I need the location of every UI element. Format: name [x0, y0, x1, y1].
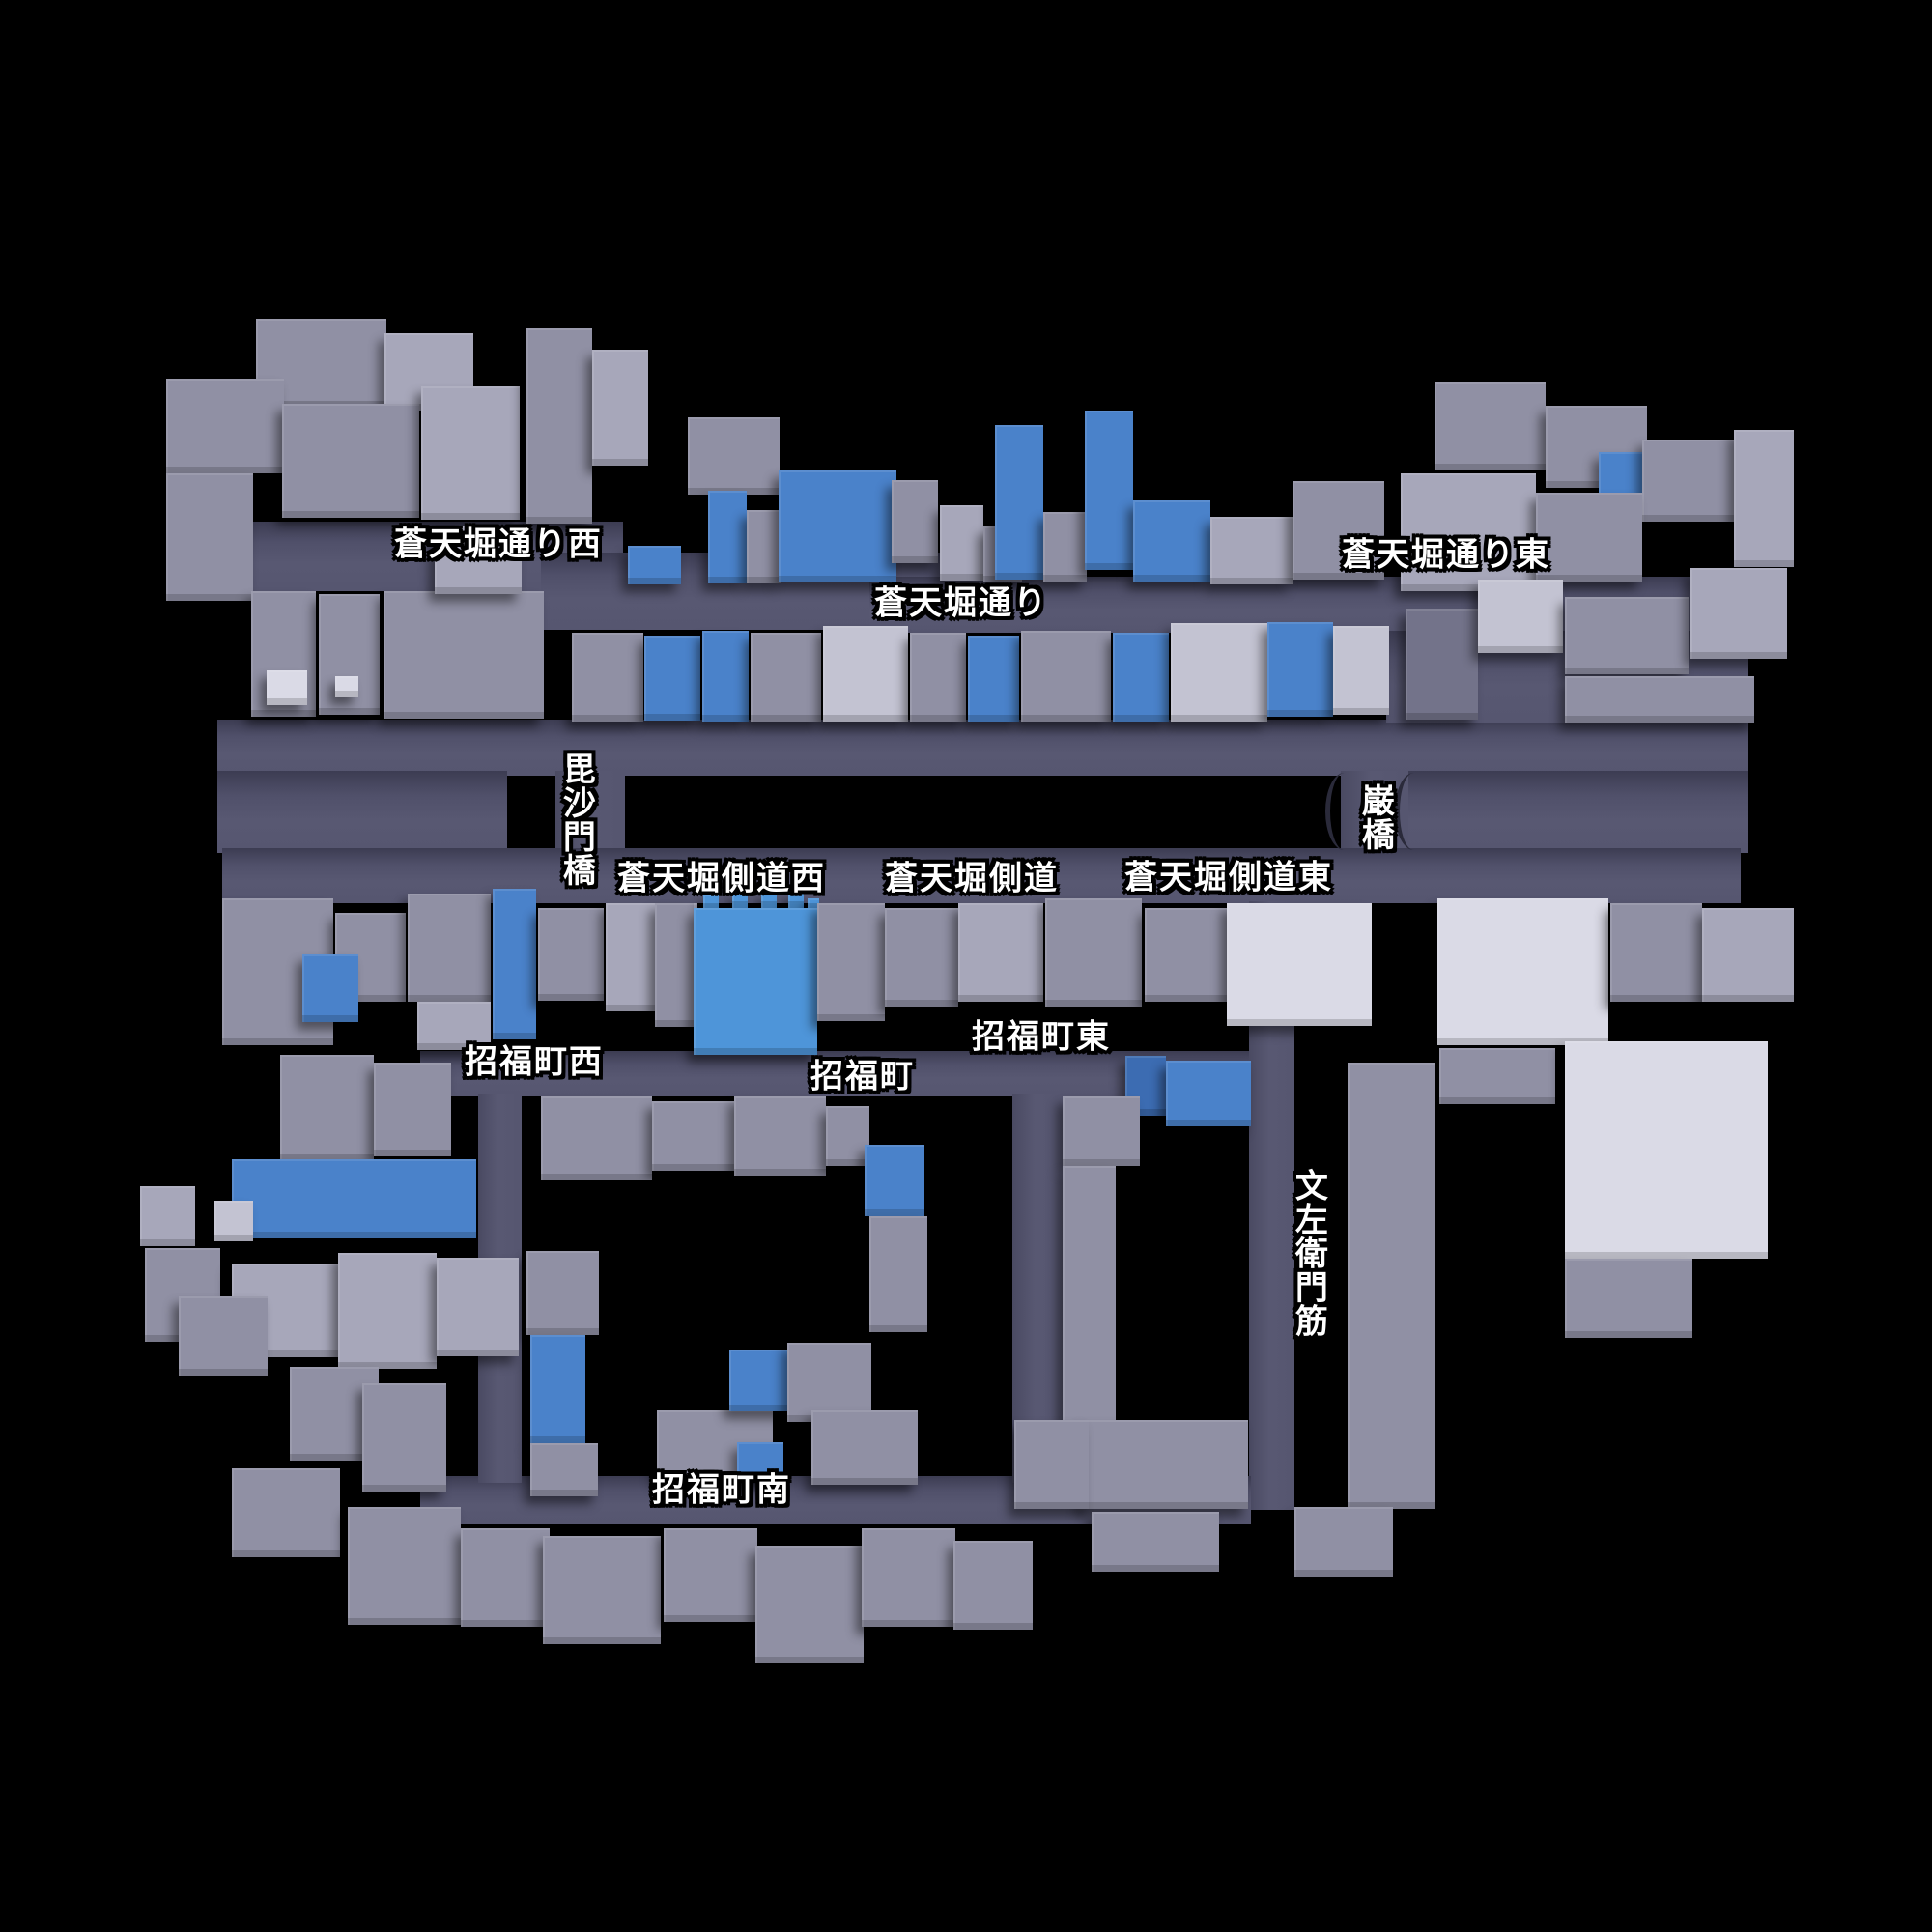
building-block: [437, 1258, 519, 1356]
building-block: [302, 954, 358, 1022]
shofukucho-east-label: 招福町東: [972, 1020, 1111, 1056]
building-block: [1171, 623, 1267, 722]
building-block: [166, 379, 284, 473]
sotenbori-footpath-west-label: 蒼天堀側道西: [617, 862, 826, 897]
building-block: [1734, 430, 1794, 567]
building-block: [953, 1541, 1033, 1630]
building-block: [1690, 568, 1787, 659]
building-block: [1021, 631, 1111, 722]
building-block: [958, 903, 1043, 1002]
building-block: [862, 1528, 955, 1627]
building-block: [734, 1096, 826, 1176]
building-block: [664, 1528, 757, 1622]
iwao-bridge-label: 巌橋: [1357, 783, 1393, 851]
building-block: [1267, 622, 1333, 717]
building-block: [538, 908, 604, 1001]
building-block: [995, 425, 1043, 580]
building-block: [1565, 1041, 1768, 1259]
building-block: [335, 676, 358, 697]
building-block: [865, 1145, 924, 1216]
building-block: [1333, 626, 1389, 715]
building-block: [811, 1410, 918, 1485]
building-block: [1406, 609, 1478, 720]
road-segment: [217, 771, 507, 853]
sotenbori-footpath-east-label: 蒼天堀側道東: [1124, 861, 1333, 896]
sotenbori-st-east-label: 蒼天堀通り東: [1342, 538, 1550, 574]
building-block: [592, 350, 648, 466]
shofukucho-label: 招福町: [810, 1060, 915, 1095]
building-block: [1063, 1096, 1140, 1166]
building-block: [1439, 1048, 1555, 1104]
building-block: [1348, 1063, 1435, 1509]
building-block: [1210, 517, 1293, 584]
building-block: [1145, 908, 1227, 1002]
building-block: [702, 631, 749, 722]
building-block: [1536, 493, 1642, 582]
building-block: [1478, 580, 1563, 653]
building-block: [817, 903, 885, 1021]
building-block: [1565, 597, 1689, 674]
building-block: [1227, 903, 1372, 1026]
building-block: [892, 480, 938, 563]
building-block: [1043, 512, 1087, 582]
sotenbori-st-west-label: 蒼天堀通り西: [394, 527, 603, 563]
road-segment: [217, 720, 1748, 776]
building-block: [910, 633, 966, 722]
bunzaemon-alley-label: 文左衛門筋: [1291, 1169, 1326, 1338]
building-block: [1166, 1061, 1251, 1126]
building-block: [166, 473, 253, 601]
building-block: [530, 1443, 598, 1496]
building-block: [526, 1251, 599, 1335]
building-block: [374, 1063, 451, 1156]
building-block: [267, 670, 307, 705]
building-block: [747, 510, 781, 583]
bridge-arch-mark: [1395, 773, 1433, 850]
building-block: [526, 328, 592, 524]
building-block: [1642, 440, 1734, 522]
building-block: [1045, 898, 1142, 1007]
building-block: [1437, 898, 1608, 1045]
building-block: [968, 636, 1019, 722]
building-block: [541, 1096, 652, 1180]
building-block: [1113, 633, 1169, 722]
building-block: [655, 903, 694, 1027]
shofukucho-south-label: 招福町南: [652, 1473, 791, 1509]
building-block: [362, 1383, 446, 1492]
building-block: [572, 633, 643, 722]
building-block: [751, 633, 821, 722]
building-block: [1014, 1420, 1089, 1509]
building-block: [885, 908, 958, 1007]
building-block: [1085, 411, 1133, 570]
building-block: [214, 1201, 253, 1241]
road-segment: [1403, 771, 1748, 853]
building-block: [1435, 382, 1546, 470]
building-block: [493, 889, 536, 1039]
building-block: [282, 404, 419, 518]
building-block: [421, 386, 520, 520]
building-block: [688, 417, 780, 495]
building-block: [140, 1186, 195, 1246]
building-block: [826, 1106, 869, 1166]
building-block: [1092, 1512, 1219, 1572]
building-block: [869, 1216, 927, 1332]
building-block: [232, 1468, 340, 1557]
building-block: [1565, 1259, 1692, 1338]
shofukucho-west-label: 招福町西: [465, 1045, 604, 1081]
building-block: [338, 1253, 437, 1369]
building-block: [1702, 908, 1794, 1002]
building-block: [694, 908, 817, 1055]
sotenbori-footpath-label: 蒼天堀側道: [885, 862, 1059, 897]
building-block: [232, 1159, 476, 1238]
building-block: [1082, 1420, 1248, 1509]
building-block: [530, 1335, 585, 1443]
building-block: [384, 591, 544, 719]
sotenbori-st-label: 蒼天堀通り: [874, 586, 1048, 622]
building-block: [755, 1546, 864, 1663]
building-block: [628, 546, 681, 584]
building-block: [1565, 676, 1754, 723]
building-block: [179, 1296, 268, 1376]
building-block: [708, 491, 747, 583]
building-block: [1063, 1166, 1116, 1446]
game-map-canvas: 蒼天堀通り西蒼天堀通り蒼天堀通り東毘沙門橋巌橋蒼天堀側道西蒼天堀側道蒼天堀側道東…: [0, 0, 1932, 1932]
building-block: [823, 626, 908, 722]
building-block: [940, 505, 983, 581]
building-block: [408, 894, 491, 1002]
building-block: [348, 1507, 461, 1625]
building-block: [729, 1350, 787, 1411]
building-block: [1294, 1507, 1393, 1577]
building-block: [461, 1528, 550, 1627]
building-block: [1610, 903, 1702, 1002]
building-block: [652, 1101, 734, 1171]
bishamon-bridge-label: 毘沙門橋: [558, 752, 594, 887]
building-block: [543, 1536, 661, 1644]
building-block: [1133, 500, 1210, 582]
building-block: [779, 470, 896, 582]
building-block: [280, 1055, 374, 1161]
building-block: [644, 636, 700, 721]
